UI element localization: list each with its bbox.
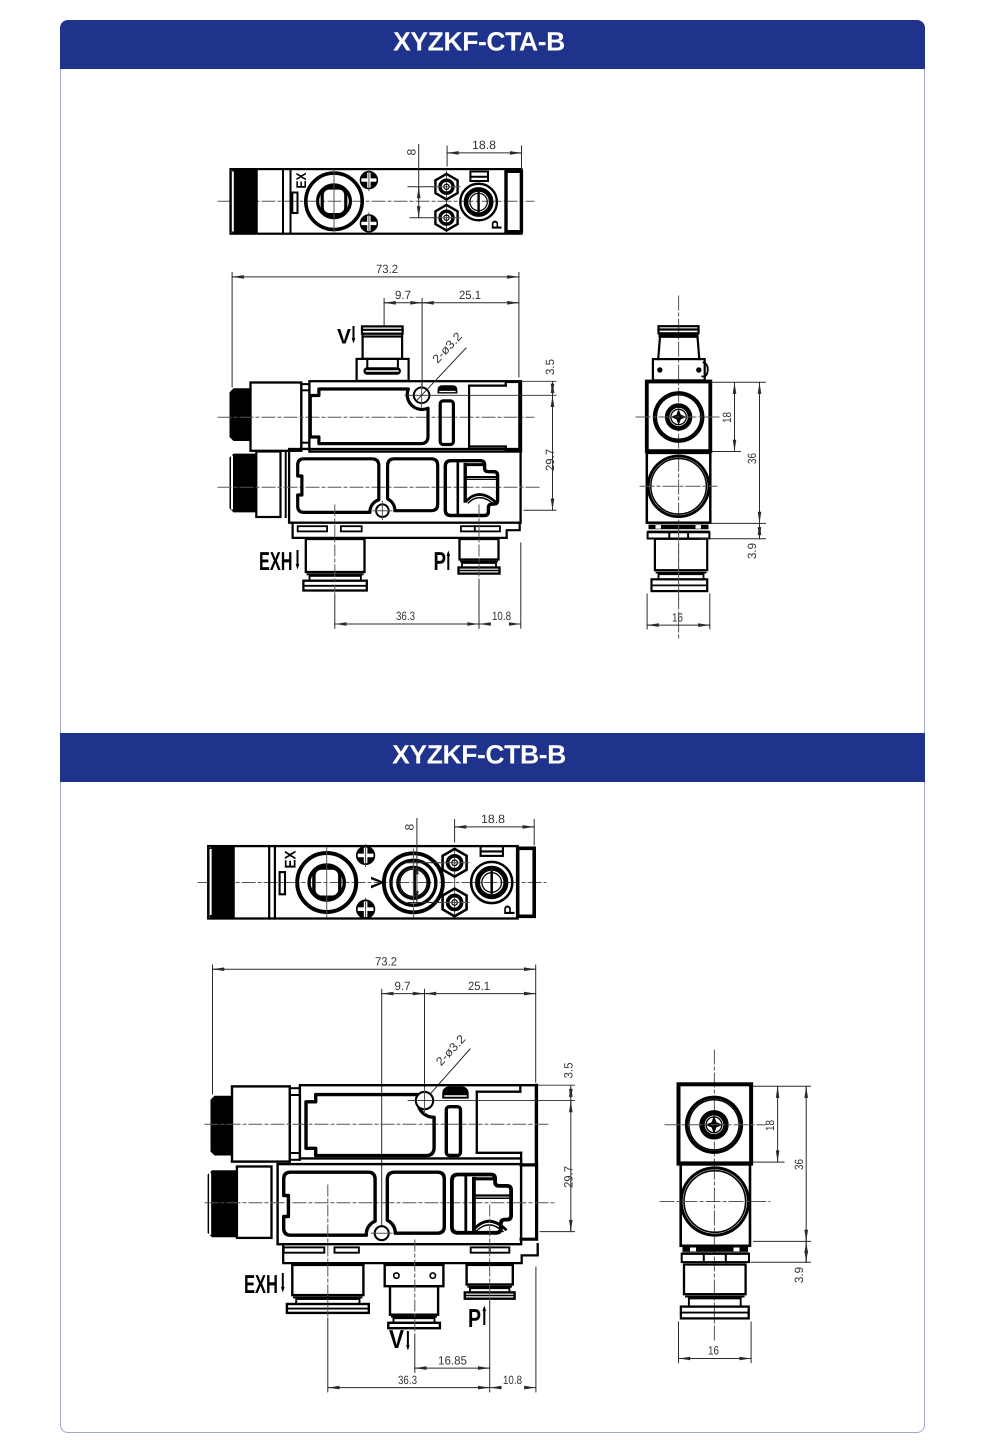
svg-text:8: 8: [403, 824, 417, 831]
svg-text:P: P: [468, 1303, 481, 1333]
svg-text:V: V: [337, 326, 351, 349]
svg-text:XYZKF-CTA-B: XYZKF-CTA-B: [393, 27, 565, 57]
svg-text:P: P: [489, 220, 505, 229]
svg-text:2-ø3.2: 2-ø3.2: [433, 1032, 469, 1069]
svg-text:36: 36: [792, 1159, 806, 1170]
svg-text:3.9: 3.9: [745, 543, 759, 559]
svg-text:16: 16: [708, 1344, 719, 1358]
svg-text:73.2: 73.2: [375, 954, 397, 968]
svg-text:29.7: 29.7: [561, 1166, 575, 1188]
svg-text:P: P: [434, 546, 447, 576]
svg-text:18: 18: [720, 412, 734, 423]
svg-text:EXH: EXH: [259, 546, 293, 576]
svg-text:18: 18: [763, 1120, 777, 1131]
svg-text:EX: EX: [283, 850, 300, 869]
svg-text:V: V: [389, 1324, 405, 1354]
svg-text:18.8: 18.8: [472, 138, 496, 152]
svg-text:25.1: 25.1: [468, 979, 490, 993]
svg-text:3.9: 3.9: [792, 1267, 806, 1283]
svg-text:16.85: 16.85: [438, 1353, 467, 1367]
svg-text:2-ø3.2: 2-ø3.2: [429, 329, 465, 366]
svg-text:8: 8: [405, 149, 419, 156]
svg-text:16: 16: [672, 611, 683, 625]
svg-text:3.5: 3.5: [543, 359, 557, 375]
svg-text:3.5: 3.5: [561, 1062, 575, 1078]
svg-text:10.8: 10.8: [503, 1373, 522, 1387]
svg-text:73.2: 73.2: [376, 262, 398, 276]
svg-text:9.7: 9.7: [395, 979, 411, 993]
svg-text:9.7: 9.7: [395, 288, 411, 302]
svg-text:36.3: 36.3: [398, 1373, 417, 1387]
svg-text:36: 36: [745, 453, 759, 464]
svg-text:EXH: EXH: [244, 1269, 278, 1299]
svg-text:29.7: 29.7: [543, 449, 557, 471]
svg-text:XYZKF-CTB-B: XYZKF-CTB-B: [392, 740, 566, 770]
svg-text:18.8: 18.8: [481, 812, 505, 826]
svg-text:25.1: 25.1: [459, 288, 481, 302]
svg-text:36.3: 36.3: [396, 609, 415, 623]
svg-text:EX: EX: [293, 172, 309, 189]
svg-text:10.8: 10.8: [492, 609, 511, 623]
